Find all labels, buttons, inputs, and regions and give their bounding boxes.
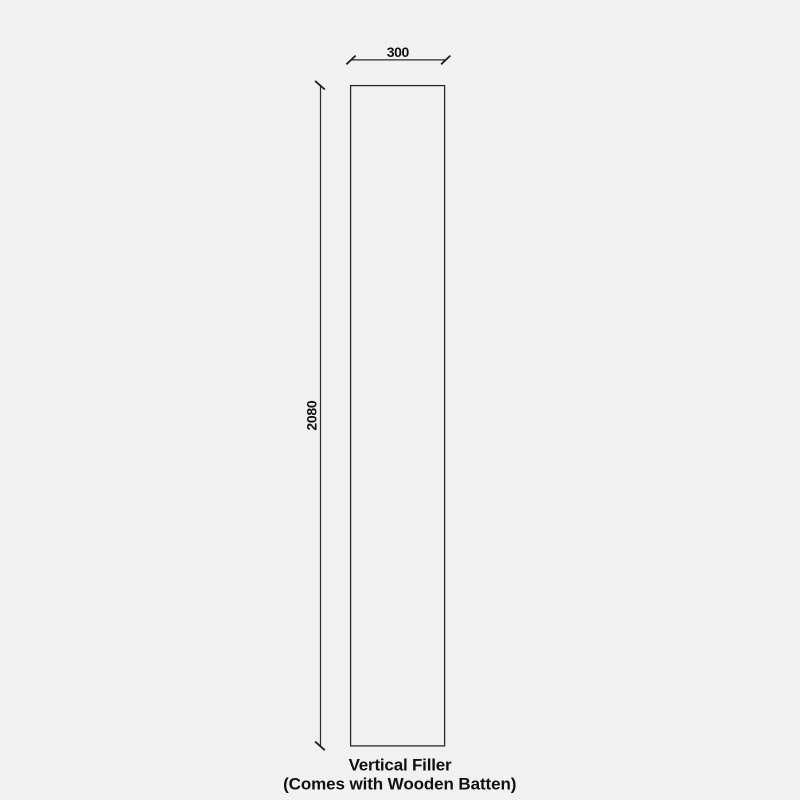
svg-text:300: 300	[387, 44, 410, 60]
svg-text:Vertical Filler: Vertical Filler	[349, 755, 452, 774]
svg-text:2080: 2080	[304, 400, 320, 430]
svg-text:(Comes with Wooden Batten): (Comes with Wooden Batten)	[283, 774, 516, 793]
